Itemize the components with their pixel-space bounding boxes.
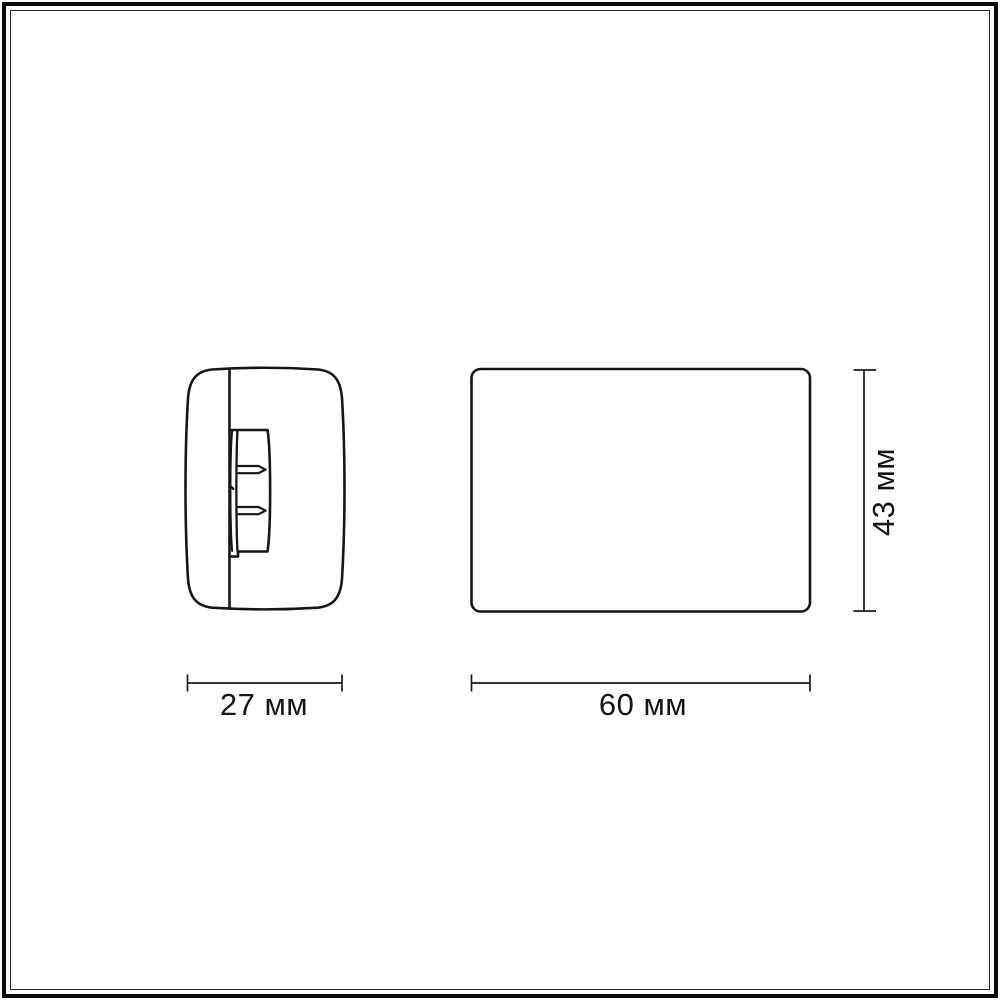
side-view-outline	[186, 368, 345, 610]
side-view-drawing	[186, 368, 345, 610]
side-view-bracket-inner-edge	[236, 431, 237, 552]
dimension-label-front-width: 60 мм	[599, 687, 687, 723]
side-view-lower-slot	[238, 507, 265, 514]
dimension-drawing	[0, 0, 1000, 1000]
dimension-label-side-width: 27 мм	[220, 687, 308, 723]
front-view-drawing	[472, 369, 811, 612]
technical-drawing-canvas: 27 мм 60 мм 43 мм	[0, 0, 1000, 1000]
dimension-label-front-height: 43 мм	[866, 448, 902, 536]
front-view-outline	[472, 369, 811, 612]
side-view-upper-slot	[238, 466, 265, 473]
